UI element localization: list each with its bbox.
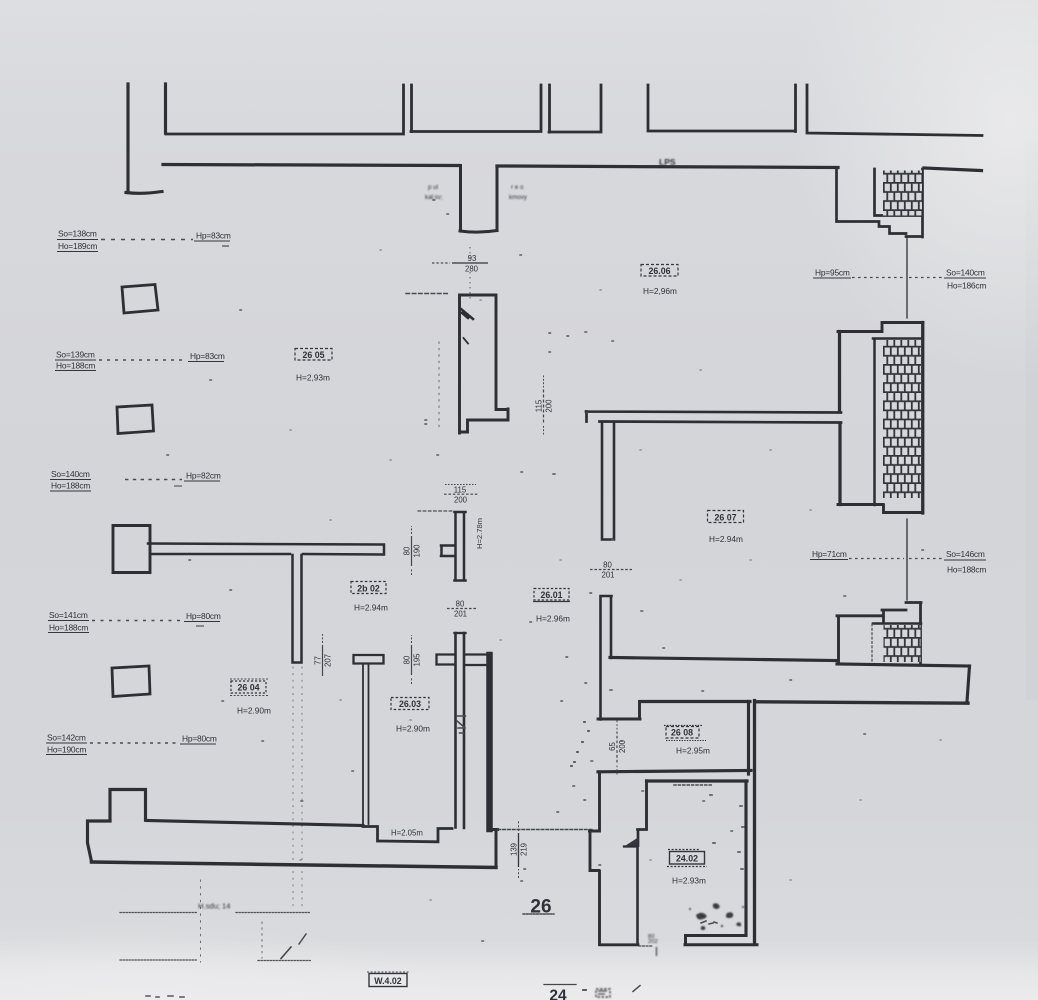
- svg-text:26.06: 26.06: [648, 266, 670, 276]
- svg-text:80: 80: [403, 546, 412, 555]
- svg-text:Hp=83cm: Hp=83cm: [196, 231, 231, 241]
- svg-text:LPS: LPS: [659, 157, 676, 167]
- svg-text:kmovy: kmovy: [509, 194, 528, 201]
- svg-text:24: 24: [549, 988, 567, 1000]
- svg-text:H=2,96m: H=2,96m: [643, 286, 677, 296]
- svg-text:219: 219: [520, 843, 529, 856]
- svg-text:Hp=83cm: Hp=83cm: [190, 351, 225, 361]
- svg-text:H=2.90m: H=2.90m: [396, 724, 430, 734]
- svg-text:115: 115: [535, 399, 544, 412]
- svg-text:77: 77: [314, 656, 323, 665]
- svg-text:26.01: 26.01: [540, 590, 562, 600]
- svg-text:280: 280: [465, 265, 479, 274]
- svg-text:So=139cm: So=139cm: [56, 350, 95, 360]
- svg-text:26 05: 26 05: [302, 350, 324, 360]
- svg-text:Ho=188cm: Ho=188cm: [49, 623, 88, 633]
- svg-text:Ho=188cm: Ho=188cm: [947, 565, 986, 575]
- svg-text:202: 202: [648, 939, 658, 945]
- svg-text:190: 190: [413, 544, 422, 558]
- svg-text:H=2.94m: H=2.94m: [354, 603, 388, 613]
- svg-text:115: 115: [454, 486, 467, 495]
- svg-text:26 08: 26 08: [671, 728, 693, 738]
- svg-text:26 07: 26 07: [714, 513, 736, 523]
- svg-text:So=140cm: So=140cm: [51, 469, 90, 479]
- svg-text:Hp=80cm: Hp=80cm: [182, 734, 217, 744]
- svg-text:24.02: 24.02: [676, 854, 698, 864]
- svg-text:H=2.94m: H=2.94m: [709, 534, 743, 544]
- svg-text:Hp=95cm: Hp=95cm: [815, 268, 850, 278]
- svg-text:80: 80: [456, 600, 465, 609]
- svg-text:H=2.95m: H=2.95m: [676, 746, 710, 756]
- svg-text:26: 26: [530, 897, 551, 918]
- svg-text:kal;sv;: kal;sv;: [425, 194, 443, 201]
- svg-text:So=140cm: So=140cm: [946, 268, 985, 278]
- svg-text:Hp=80cm: Hp=80cm: [186, 611, 221, 621]
- svg-text:W.4.02: W.4.02: [374, 976, 401, 986]
- svg-text:So=142cm: So=142cm: [47, 733, 86, 743]
- svg-text:65: 65: [608, 742, 617, 751]
- svg-text:Ho=188cm: Ho=188cm: [56, 361, 95, 371]
- svg-text:139: 139: [510, 843, 519, 856]
- svg-text:So=138cm: So=138cm: [58, 229, 97, 239]
- svg-text:93: 93: [468, 254, 477, 263]
- svg-text:r e o: r e o: [511, 184, 524, 191]
- svg-text:H.sdu; 14: H.sdu; 14: [198, 902, 231, 911]
- svg-text:So=141cm: So=141cm: [49, 610, 88, 620]
- svg-text:200: 200: [618, 739, 627, 753]
- svg-text:2b 02: 2b 02: [357, 584, 380, 594]
- svg-text:80: 80: [403, 655, 412, 664]
- svg-text:Ho=188cm: Ho=188cm: [51, 481, 90, 491]
- svg-text:Ho=186cm: Ho=186cm: [947, 281, 986, 291]
- svg-text:201: 201: [454, 610, 467, 619]
- svg-text:H=2.96m: H=2.96m: [536, 614, 570, 624]
- svg-text:Hp=82cm: Hp=82cm: [186, 471, 221, 481]
- svg-text:H=2,93m: H=2,93m: [296, 373, 330, 383]
- svg-text:26 04: 26 04: [237, 683, 259, 693]
- svg-text:H=2.05m: H=2.05m: [391, 829, 423, 838]
- svg-text:H=2.78m: H=2.78m: [475, 518, 484, 549]
- svg-text:So=146cm: So=146cm: [946, 549, 985, 559]
- svg-text:207: 207: [324, 654, 333, 667]
- svg-text:H=2.90m: H=2.90m: [237, 706, 271, 716]
- svg-text:Hp=71cm: Hp=71cm: [812, 549, 847, 559]
- svg-text:80: 80: [603, 561, 612, 570]
- svg-text:195: 195: [413, 653, 422, 667]
- svg-text:Ho=189cm: Ho=189cm: [58, 241, 97, 251]
- svg-text:H=2.93m: H=2.93m: [672, 876, 706, 886]
- svg-text:200: 200: [454, 496, 468, 505]
- svg-text:200: 200: [545, 399, 554, 413]
- svg-text:26.03: 26.03: [399, 699, 421, 709]
- svg-text:Ho=190cm: Ho=190cm: [47, 745, 86, 755]
- svg-text:p ul: p ul: [428, 184, 438, 191]
- svg-text:201: 201: [601, 571, 614, 580]
